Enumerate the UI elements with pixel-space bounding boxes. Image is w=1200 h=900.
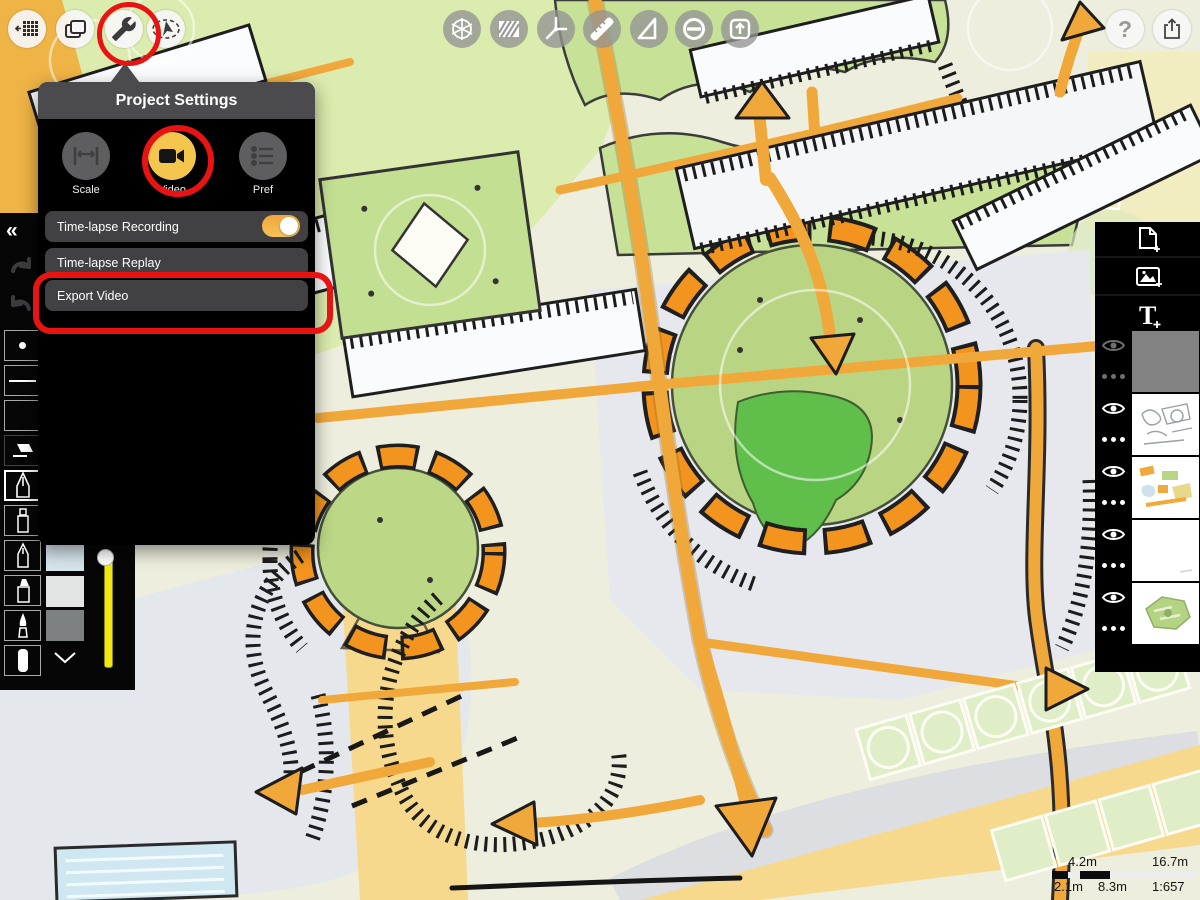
- green-map-thumb: [1132, 583, 1199, 644]
- layer-options-button[interactable]: [1102, 500, 1125, 505]
- brush-tool[interactable]: [4, 610, 41, 641]
- add-page-button[interactable]: [1095, 222, 1200, 258]
- ruler-icon: [589, 16, 615, 42]
- scale-bar-segment: [1052, 871, 1068, 879]
- scale-lower-mid: 8.3m: [1098, 879, 1127, 894]
- layer-options-button[interactable]: [1102, 626, 1125, 631]
- layer-options-button[interactable]: [1102, 563, 1125, 568]
- project-settings-button[interactable]: [105, 10, 143, 48]
- layer-row-1[interactable]: [1095, 330, 1200, 393]
- hatch-fill-button[interactable]: [490, 10, 528, 48]
- dot-tool[interactable]: [4, 330, 41, 361]
- eraser-icon: [9, 440, 37, 462]
- visibility-eye-icon[interactable]: [1101, 400, 1126, 417]
- add-image-button[interactable]: [1095, 260, 1200, 296]
- app-window: ? «: [0, 0, 1200, 900]
- popover-caret: [110, 63, 140, 83]
- layer-row-3[interactable]: [1095, 456, 1200, 519]
- layer-options-button[interactable]: [1102, 437, 1125, 442]
- stacked-pages-icon: [63, 17, 87, 41]
- marker-tool[interactable]: [4, 575, 41, 606]
- grid-arrow-icon: [15, 17, 39, 41]
- angle-icon: [543, 16, 569, 42]
- tab-pref-label: Pref: [233, 184, 293, 196]
- sphere-axes-icon: [449, 16, 475, 42]
- blank-thumb: [1132, 520, 1199, 581]
- visibility-eye-icon[interactable]: [1101, 526, 1126, 543]
- chevron-down-icon[interactable]: [53, 651, 77, 664]
- pool: [55, 842, 237, 900]
- ring-lawn-left: [318, 468, 478, 628]
- tab-video[interactable]: [148, 132, 196, 180]
- video-camera-icon: [158, 146, 186, 166]
- timelapse-recording-label: Time-lapse Recording: [57, 220, 179, 234]
- timelapse-replay-label: Time-lapse Replay: [57, 256, 161, 270]
- add-text-button[interactable]: T: [1095, 298, 1200, 334]
- text-plus-icon: T: [1131, 301, 1165, 331]
- soft-pencil-icon: [9, 647, 37, 674]
- line-icon: [9, 380, 36, 382]
- soft-pencil-tool[interactable]: [4, 645, 41, 676]
- list-icon: [250, 145, 276, 167]
- visibility-eye-icon[interactable]: [1101, 337, 1126, 354]
- scale-ratio: 1:657: [1152, 879, 1185, 894]
- measure-icon: [71, 144, 101, 168]
- visibility-eye-icon[interactable]: [1101, 463, 1126, 480]
- view-3d-button[interactable]: [443, 10, 481, 48]
- angle-tool-button[interactable]: [537, 10, 575, 48]
- svg-text:T: T: [1139, 301, 1156, 330]
- marker-icon: [9, 577, 37, 604]
- share-tray-icon: [1160, 17, 1184, 41]
- canvas-grid-button[interactable]: [8, 10, 46, 48]
- tab-pref[interactable]: [239, 132, 287, 180]
- toggle-knob: [280, 217, 298, 235]
- question-icon: ?: [1118, 16, 1132, 43]
- layers-panel: T: [1095, 222, 1200, 672]
- color-swatch-2[interactable]: [46, 576, 84, 607]
- image-plus-icon: [1133, 264, 1163, 290]
- box-up-arrow-icon: [728, 17, 752, 41]
- pen-tool[interactable]: [4, 540, 41, 571]
- pen-icon: [9, 542, 37, 569]
- technical-pen-icon: [9, 472, 37, 499]
- garden-square: [320, 152, 540, 338]
- line-sketch-thumb: [1132, 394, 1199, 455]
- size-slider-knob[interactable]: [97, 549, 114, 566]
- layer-thumbnail[interactable]: [1132, 583, 1199, 644]
- layer-row-4[interactable]: [1095, 519, 1200, 582]
- wrench-icon: [111, 16, 137, 42]
- circle-minus-icon: [681, 16, 707, 42]
- scale-upper-right: 16.7m: [1152, 854, 1188, 869]
- popover-header: Project Settings: [38, 82, 315, 119]
- hatch-square-icon: [497, 17, 521, 41]
- fineliner-icon: [9, 507, 37, 534]
- tab-video-label: Video: [142, 184, 202, 196]
- layer-thumbnail[interactable]: [1132, 520, 1199, 581]
- restrict-button[interactable]: [675, 10, 713, 48]
- stamp-export-button[interactable]: [721, 10, 759, 48]
- export-video-label: Export Video: [57, 289, 128, 303]
- layer-thumbnail[interactable]: [1132, 394, 1199, 455]
- fineliner-tool[interactable]: [4, 505, 41, 536]
- tab-scale-label: Scale: [56, 184, 116, 196]
- color-sketch-thumb: [1132, 457, 1199, 518]
- timelapse-recording-toggle[interactable]: [262, 215, 300, 237]
- share-button[interactable]: [1153, 10, 1191, 48]
- popover-title: Project Settings: [116, 92, 238, 110]
- set-square-button[interactable]: [630, 10, 668, 48]
- layer-thumbnail[interactable]: [1132, 457, 1199, 518]
- triangle-icon: [636, 16, 662, 42]
- redo-button[interactable]: [8, 293, 34, 319]
- timelapse-recording-row[interactable]: Time-lapse Recording: [45, 211, 308, 242]
- collapse-toolbar-button[interactable]: «: [6, 219, 16, 243]
- scale-lower-left: 2.1m: [1054, 879, 1083, 894]
- undo-button[interactable]: [8, 255, 34, 281]
- layer-row-5[interactable]: [1095, 582, 1200, 645]
- layer-options-button[interactable]: [1102, 374, 1125, 379]
- tab-scale[interactable]: [62, 132, 110, 180]
- color-swatch-3[interactable]: [46, 610, 84, 641]
- help-button[interactable]: ?: [1106, 10, 1144, 48]
- compass-cursor-icon: [151, 16, 181, 42]
- line-tool[interactable]: [4, 365, 41, 396]
- orient-button[interactable]: [147, 10, 185, 48]
- page-plus-icon: [1133, 224, 1163, 254]
- layer-row-2[interactable]: [1095, 393, 1200, 456]
- dot-icon: [19, 342, 26, 349]
- blank-tool[interactable]: [4, 400, 41, 431]
- export-video-button[interactable]: Export Video: [45, 280, 308, 311]
- scale-upper-left: 4.2m: [1068, 854, 1097, 869]
- eraser-tool[interactable]: [4, 435, 41, 466]
- scale-bar: [1050, 872, 1198, 878]
- ruler-tool-button[interactable]: [583, 10, 621, 48]
- project-settings-popover: Project Settings Scale Vide: [38, 82, 315, 545]
- brush-icon: [9, 612, 37, 639]
- technical-pen-tool[interactable]: [4, 470, 41, 501]
- layer-thumbnail[interactable]: [1132, 331, 1199, 392]
- visibility-eye-icon[interactable]: [1101, 589, 1126, 606]
- scale-bar-segment: [1080, 871, 1110, 879]
- timelapse-replay-button[interactable]: Time-lapse Replay: [45, 248, 308, 277]
- projects-button[interactable]: [56, 10, 94, 48]
- size-slider[interactable]: [104, 556, 113, 668]
